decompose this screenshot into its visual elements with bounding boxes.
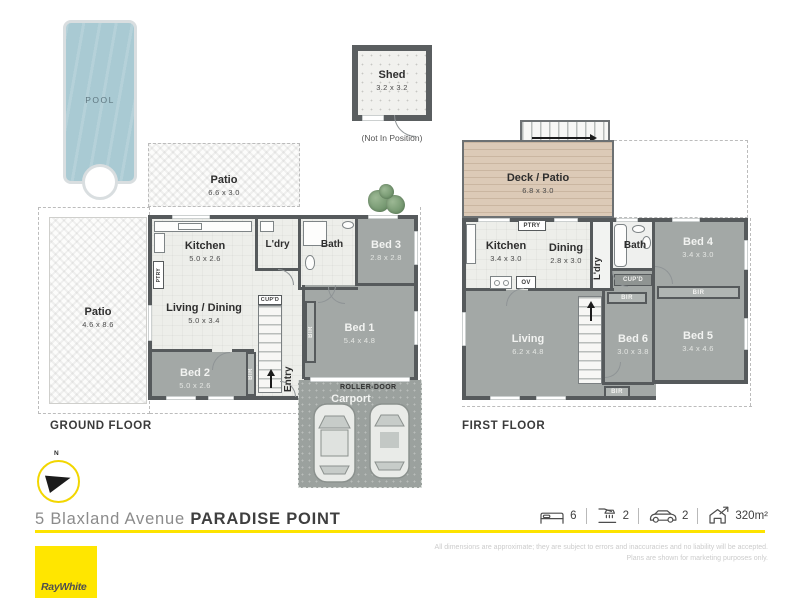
first-bed4-bir: BIR bbox=[657, 286, 740, 299]
wall bbox=[602, 382, 654, 385]
pantry-label: PTRY bbox=[524, 223, 541, 229]
first-building: BIR BIR BIR PTRY OV CUP'D bbox=[462, 218, 748, 400]
divider bbox=[638, 508, 639, 524]
wall bbox=[652, 222, 655, 382]
wall bbox=[255, 219, 258, 269]
wall bbox=[610, 222, 613, 290]
cars-stat: 2 bbox=[648, 508, 688, 524]
car-icon bbox=[311, 402, 358, 484]
window-strip bbox=[414, 311, 418, 345]
ground-cupboard: CUP'D bbox=[258, 295, 282, 305]
window-strip bbox=[536, 396, 566, 400]
ground-pantry: PTRY bbox=[153, 261, 164, 289]
ground-bed3-floor bbox=[358, 219, 414, 285]
door-arc bbox=[278, 269, 294, 285]
first-pantry: PTRY bbox=[518, 220, 546, 231]
address-suburb: PARADISE POINT bbox=[190, 510, 340, 528]
compass-north-label: N bbox=[54, 450, 59, 457]
bathtub bbox=[614, 224, 627, 267]
ground-dashed-right bbox=[420, 207, 421, 382]
wall bbox=[152, 349, 212, 352]
room-name: Patio bbox=[50, 306, 146, 320]
disclaimer-line2: Plans are shown for marketing purposes o… bbox=[348, 553, 768, 564]
first-dashed-right bbox=[750, 218, 751, 406]
shed-window bbox=[362, 115, 384, 121]
window-strip bbox=[616, 218, 638, 222]
toilet bbox=[642, 236, 651, 249]
shed: Shed 3.2 x 3.2 bbox=[352, 45, 432, 121]
first-stairs bbox=[578, 296, 602, 384]
ground-stairs bbox=[258, 305, 282, 393]
wall bbox=[355, 219, 358, 285]
room-label-deck: Deck / Patio 6.8 x 3.0 bbox=[464, 172, 612, 195]
door-arc bbox=[605, 362, 621, 378]
area-stat: 320m² bbox=[707, 506, 768, 525]
window-strip bbox=[490, 396, 520, 400]
disclaimer-line1: All dimensions are approximate; they are… bbox=[348, 542, 768, 553]
toilet bbox=[305, 255, 315, 270]
window-strip bbox=[166, 396, 196, 400]
laundry-tub bbox=[260, 221, 274, 232]
ground-dashed-bottom bbox=[150, 413, 296, 414]
raywhite-logo: RayWhite bbox=[35, 546, 97, 598]
room-label-shed: Shed 3.2 x 3.2 bbox=[358, 69, 426, 92]
entry-label: Entry bbox=[283, 340, 294, 392]
car-side-icon bbox=[648, 508, 677, 524]
room-name: Deck / Patio bbox=[464, 172, 612, 186]
property-stats: 6 2 2 bbox=[539, 506, 768, 525]
wall bbox=[298, 219, 301, 289]
bir-label: BIR bbox=[693, 290, 705, 296]
baths-count: 2 bbox=[623, 510, 629, 522]
room-dims: 6.8 x 3.0 bbox=[464, 186, 612, 195]
ground-bed2-floor bbox=[152, 352, 248, 396]
bir-label: BIR bbox=[308, 326, 314, 338]
window-strip bbox=[208, 396, 234, 400]
tree-icon bbox=[379, 184, 394, 199]
accent-rule bbox=[35, 530, 765, 533]
window-strip bbox=[172, 215, 210, 219]
window-strip bbox=[148, 305, 152, 341]
first-bed6-bir-bottom: BIR bbox=[604, 386, 630, 398]
floorplan-page: POOL Patio 6.6 x 3.0 Shed 3.2 x 3.2 (Not… bbox=[0, 0, 800, 600]
stairs-arrow-stem bbox=[270, 375, 272, 388]
bath-sink bbox=[342, 221, 354, 229]
bir-label: BIR bbox=[621, 295, 633, 301]
beds-stat: 6 bbox=[539, 507, 576, 524]
carport-label: Carport bbox=[316, 393, 386, 405]
window-strip bbox=[672, 218, 700, 222]
first-kitchen-counter bbox=[466, 224, 476, 264]
shower bbox=[303, 221, 327, 246]
ground-floor-title: GROUND FLOOR bbox=[50, 420, 152, 432]
roller-door-label: ROLLER-DOOR bbox=[340, 384, 420, 391]
pool-step bbox=[82, 164, 118, 200]
oven-label: OV bbox=[521, 280, 530, 286]
room-label-patio-left: Patio 4.6 x 8.6 bbox=[50, 306, 146, 329]
raywhite-wordmark: RayWhite bbox=[41, 581, 86, 593]
bir-label: BIR bbox=[248, 368, 254, 380]
kitchen-counter bbox=[154, 221, 252, 232]
divider bbox=[586, 508, 587, 524]
window-strip bbox=[478, 218, 510, 222]
first-deck: Deck / Patio 6.8 x 3.0 bbox=[462, 140, 614, 218]
room-name: Shed bbox=[358, 69, 426, 83]
ground-bed2-bir: BIR bbox=[246, 352, 256, 396]
kitchen-fridge bbox=[154, 233, 165, 253]
beds-count: 6 bbox=[570, 510, 576, 522]
divider bbox=[697, 508, 698, 524]
kitchen-sink bbox=[178, 223, 202, 230]
address-street: 5 Blaxland Avenue bbox=[35, 510, 185, 528]
area-value: 320m² bbox=[735, 510, 768, 522]
ground-patio-left: Patio 4.6 x 8.6 bbox=[49, 217, 147, 404]
window-strip bbox=[744, 240, 748, 270]
pool: POOL bbox=[63, 20, 137, 184]
cupboard-label: CUP'D bbox=[261, 297, 279, 303]
cars-count: 2 bbox=[682, 510, 688, 522]
roller-door-strip bbox=[310, 377, 410, 382]
room-dims: 3.2 x 3.2 bbox=[358, 83, 426, 92]
ground-patio-left-boundary: Patio 4.6 x 8.6 bbox=[38, 207, 150, 414]
room-dims: 4.6 x 8.6 bbox=[50, 320, 146, 329]
pool-label: POOL bbox=[66, 95, 134, 105]
address-line: 5 Blaxland Avenue PARADISE POINT bbox=[35, 510, 341, 529]
bir-label: BIR bbox=[611, 389, 623, 395]
first-floor-title: FIRST FLOOR bbox=[462, 420, 545, 432]
wall bbox=[355, 283, 414, 286]
stairs-arrow-stem bbox=[532, 137, 592, 139]
car-icon bbox=[367, 402, 412, 480]
disclaimer: All dimensions are approximate; they are… bbox=[348, 542, 768, 564]
stairs-arrow-stem bbox=[590, 307, 592, 321]
exterior-cutout bbox=[656, 384, 748, 400]
window-strip bbox=[744, 318, 748, 350]
stove bbox=[490, 276, 512, 289]
window-strip bbox=[368, 215, 398, 219]
bath-sink bbox=[632, 225, 645, 233]
shower-icon bbox=[596, 507, 618, 524]
ground-bed1-bir: BIR bbox=[305, 301, 316, 363]
window-strip bbox=[462, 312, 466, 346]
first-oven: OV bbox=[516, 276, 536, 289]
window-strip bbox=[414, 231, 418, 265]
room-dims: 6.6 x 3.0 bbox=[149, 188, 299, 197]
ground-patio-top: Patio 6.6 x 3.0 bbox=[148, 143, 300, 207]
first-bed6-bir-top: BIR bbox=[607, 292, 647, 304]
house-area-icon bbox=[707, 506, 730, 525]
baths-stat: 2 bbox=[596, 507, 629, 524]
ldry-label-f: L'dry bbox=[592, 232, 603, 280]
first-dashed-area bbox=[614, 140, 748, 218]
compass: N bbox=[30, 450, 88, 508]
first-dashed-bottom bbox=[462, 406, 752, 407]
door-arc bbox=[655, 266, 673, 284]
room-name: Patio bbox=[149, 174, 299, 188]
pantry-label: PTRY bbox=[156, 268, 162, 282]
door-arc bbox=[506, 288, 524, 306]
window-strip bbox=[554, 218, 578, 222]
room-label-patio-top: Patio 6.6 x 3.0 bbox=[149, 174, 299, 197]
bed-icon bbox=[539, 507, 565, 524]
shed-note: (Not In Position) bbox=[340, 133, 444, 143]
